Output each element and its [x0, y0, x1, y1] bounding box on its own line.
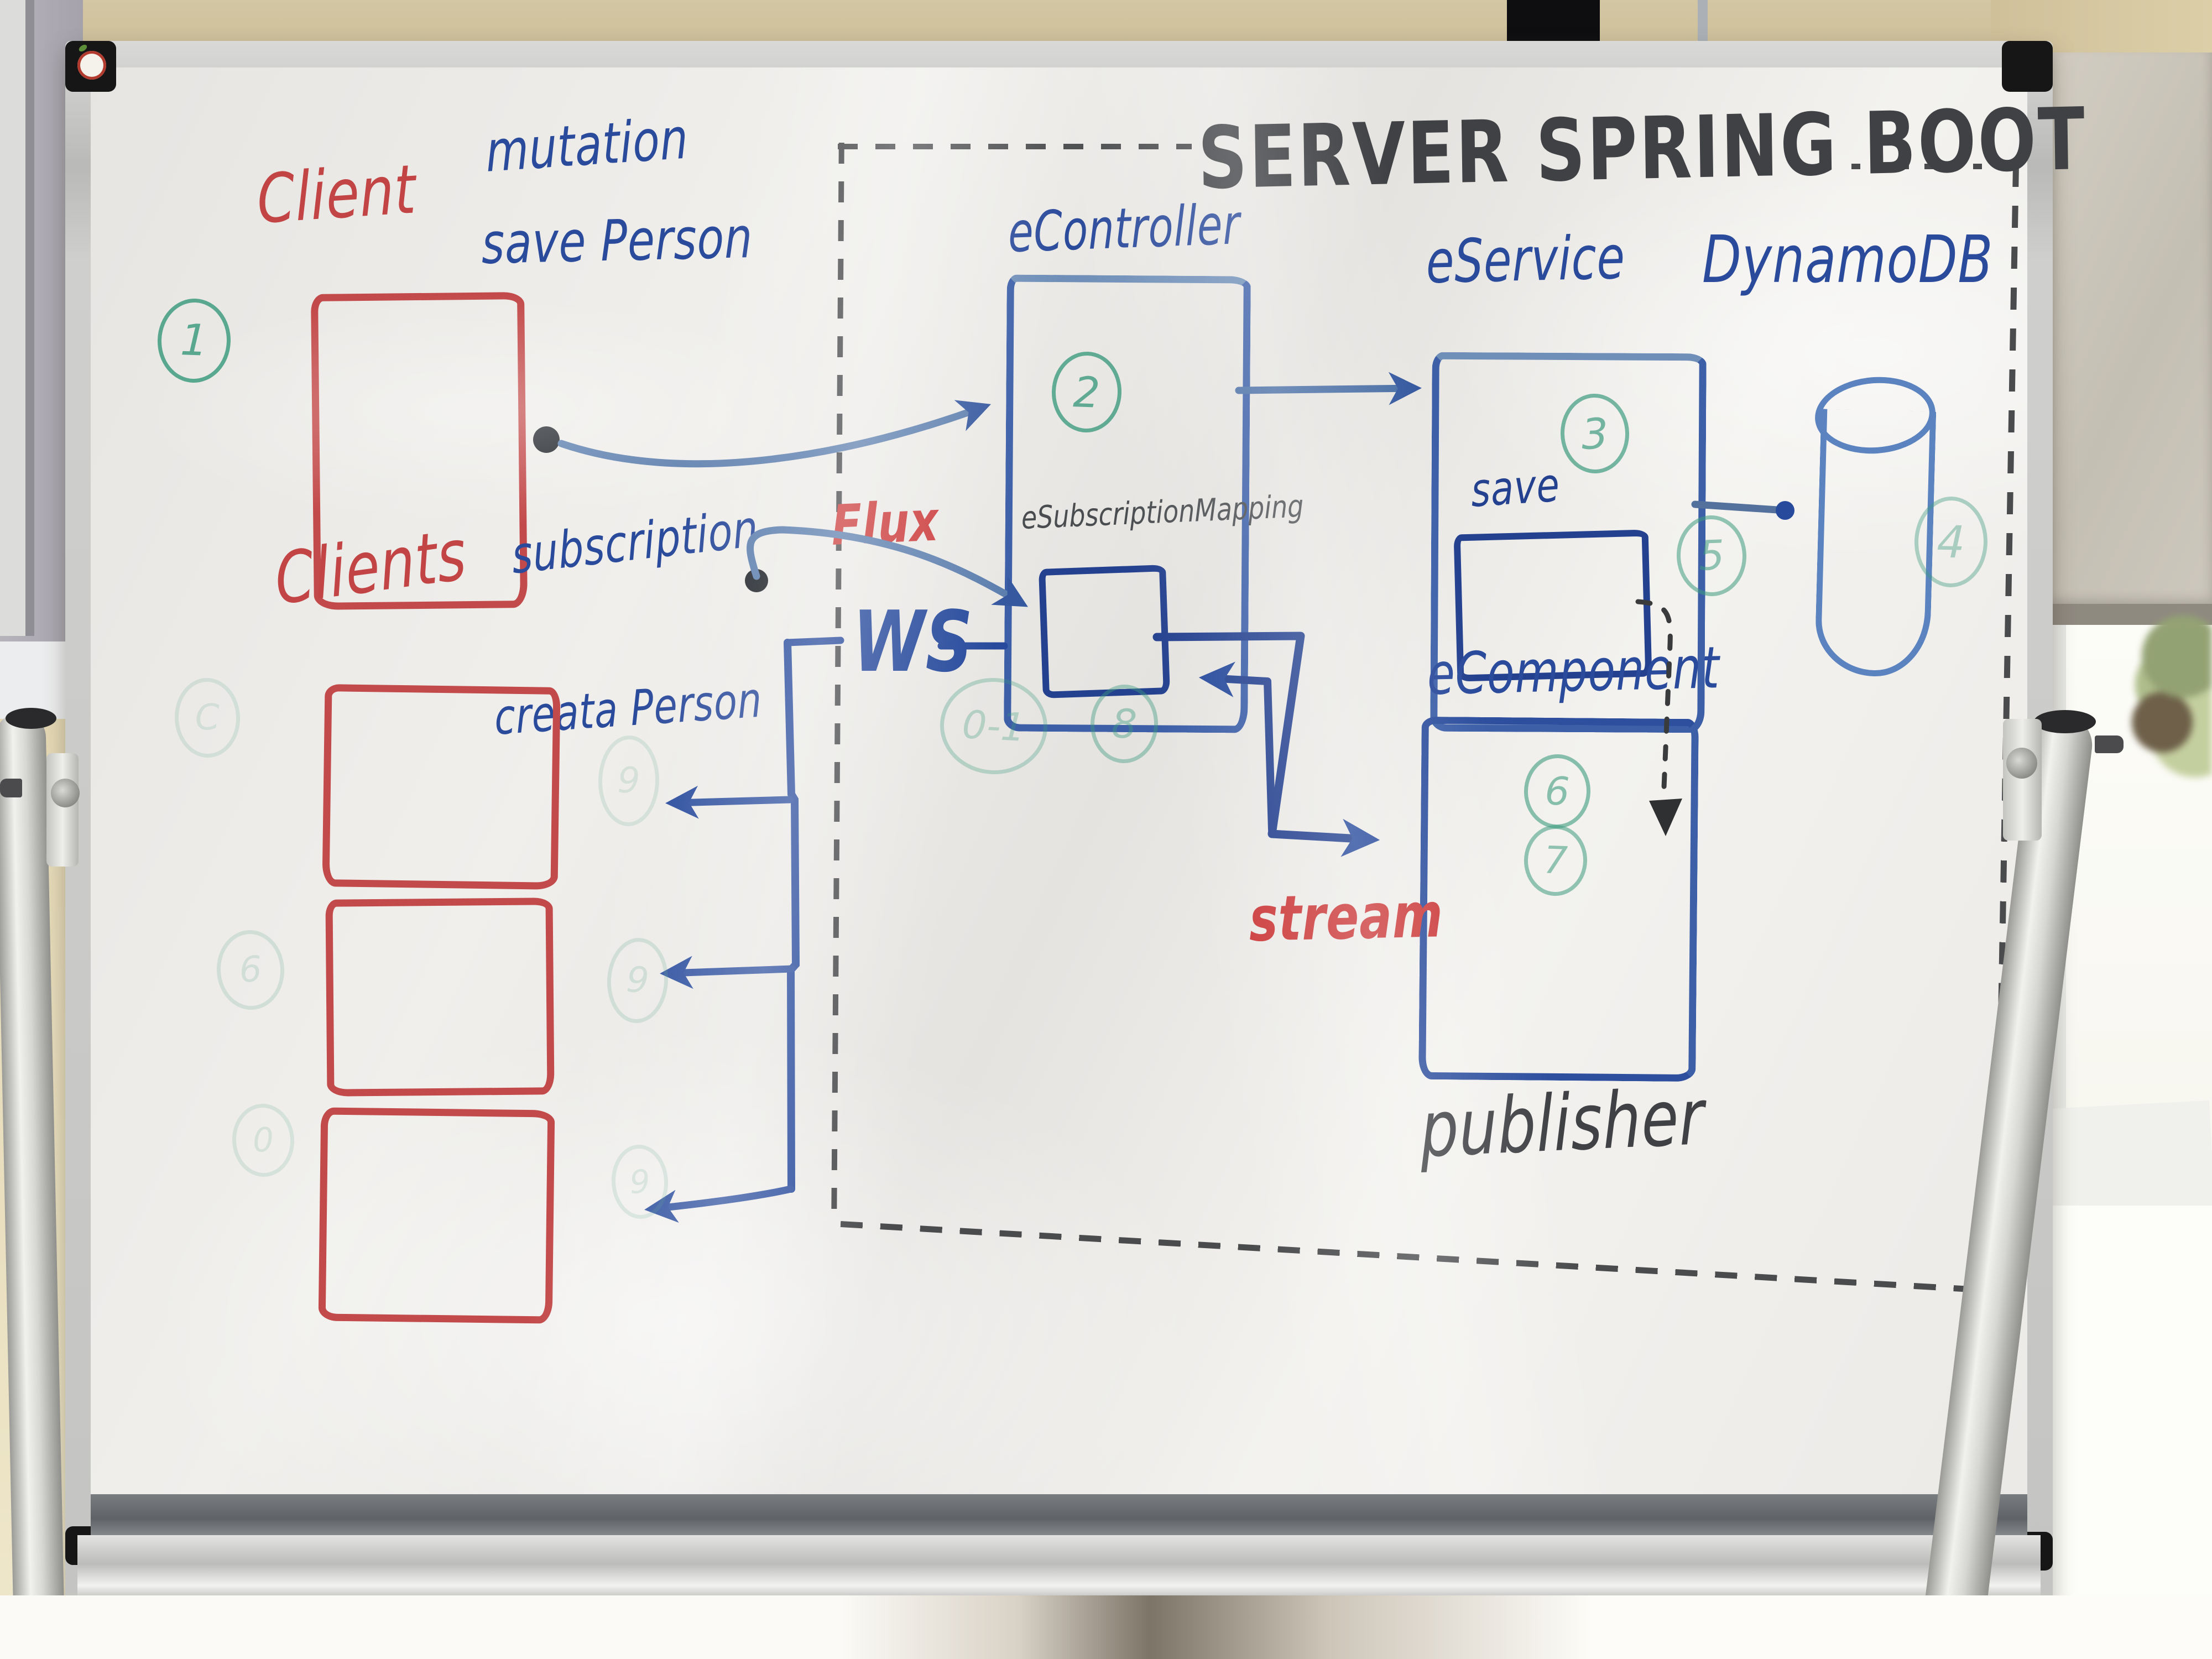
- save-to-ecomponent-dashed-arrowhead: [1649, 799, 1682, 836]
- mutation-arrow: [561, 407, 983, 464]
- fanout-arrow-1: [674, 800, 790, 803]
- eservice-to-dynamodb-end-dot: [1776, 501, 1794, 520]
- left-stand-cap: [6, 708, 56, 729]
- right-stand-clamp: [2003, 719, 2042, 841]
- left-stand-clamp: [46, 753, 79, 867]
- flux-ws-arrow: [750, 530, 1021, 603]
- right-stand-knob: [2095, 735, 2124, 753]
- fanout-arrow-3: [653, 1189, 791, 1209]
- floor-sunlight-glare: [0, 1595, 2212, 1659]
- fanout-spine: [787, 643, 796, 1189]
- left-stand-bolt: [51, 779, 80, 807]
- mutation-start-dot: [533, 426, 560, 453]
- whiteboard-photo: SERVER SPRING BOOT Client mutation save …: [0, 0, 2212, 1659]
- left-stand-knob: [0, 779, 22, 797]
- right-stand-cap: [2034, 710, 2096, 733]
- fanout-arrow-2: [668, 969, 792, 973]
- ws-line-segment: [787, 640, 841, 643]
- eservice-to-dynamodb-line: [1695, 504, 1777, 510]
- board-bottom-rail: [91, 1494, 2027, 1535]
- right-stand-bolt: [2006, 748, 2037, 779]
- econtroller-to-eservice-arrow: [1239, 388, 1413, 390]
- return-arrow-into-mapping-box: [1208, 678, 1272, 830]
- stream-path-to-ecomponent: [1157, 636, 1370, 839]
- save-to-ecomponent-dashed-line: [1638, 602, 1670, 801]
- connector-lines: [0, 0, 2212, 1659]
